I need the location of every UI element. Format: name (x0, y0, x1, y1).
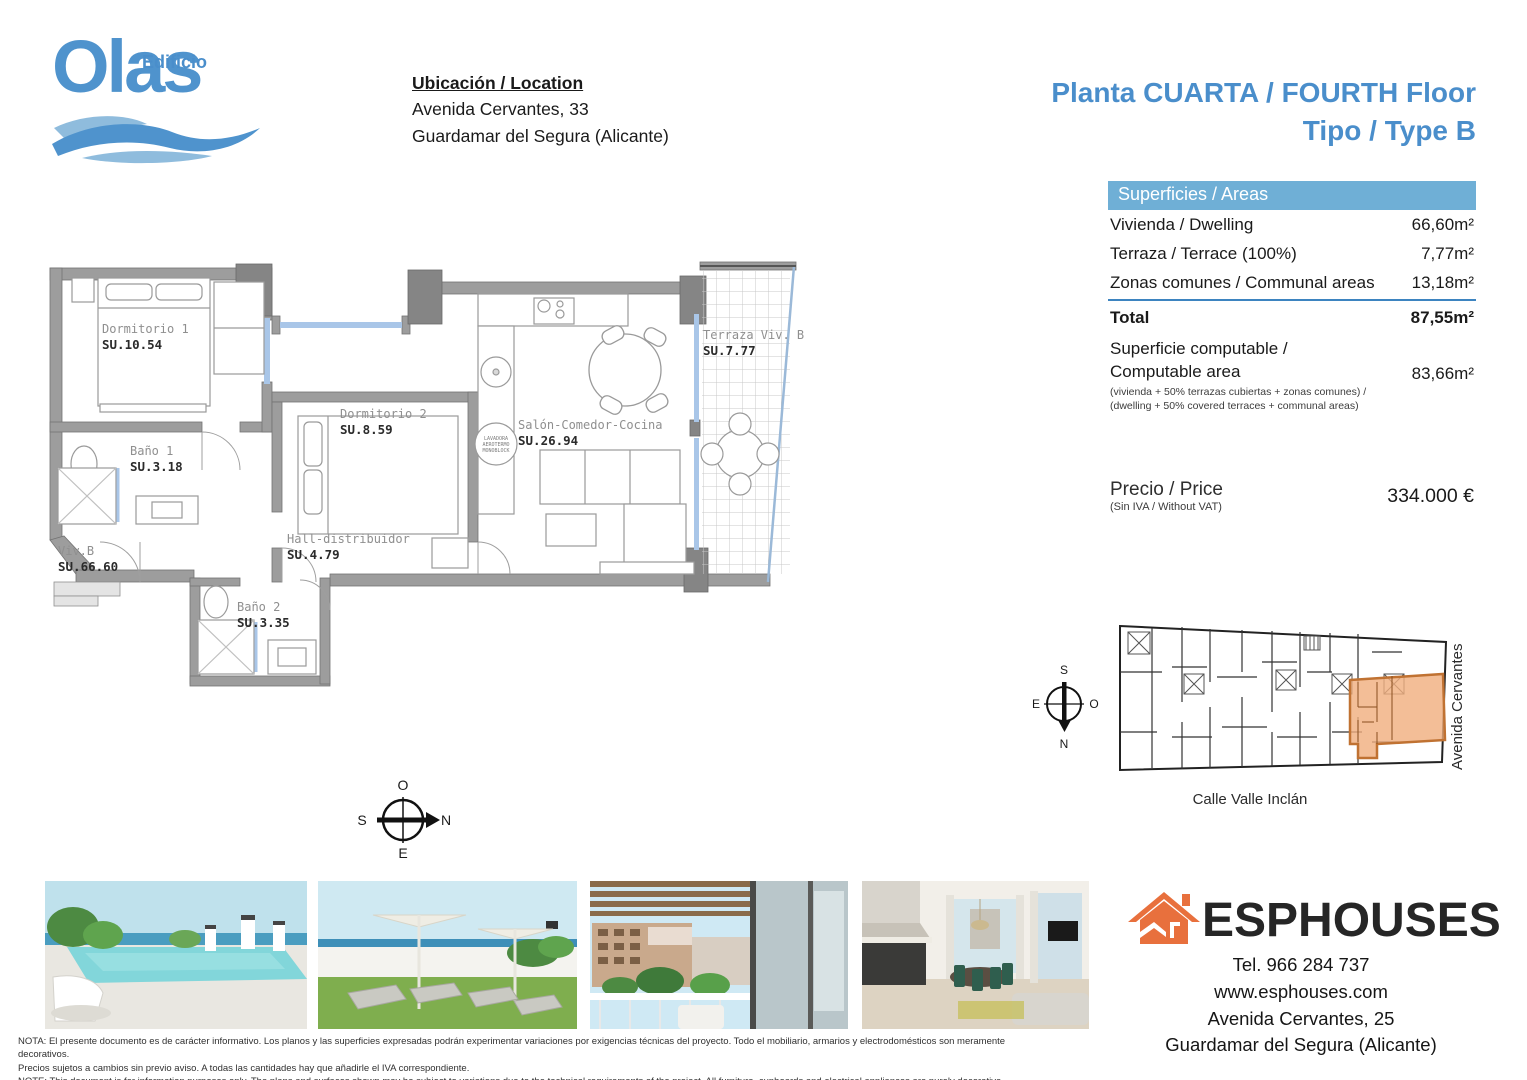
site-compass-left: E (1032, 697, 1040, 711)
disclaimer-es-2: Precios sujetos a cambios sin previo avi… (18, 1062, 1018, 1075)
computable-value: 83,66m² (1412, 364, 1474, 384)
agency-website: www.esphouses.com (1100, 979, 1502, 1006)
washer-label-3: MONOBLOCK (482, 448, 509, 454)
room-label-terraza: Terraza Viv. B SU.7.77 (703, 328, 804, 359)
areas-header: Superficies / Areas (1108, 181, 1476, 210)
area-row-dwelling: Vivienda / Dwelling 66,60m² (1108, 210, 1476, 239)
esphouses-house-icon (1126, 888, 1202, 955)
room-label-bano1: Baño 1 SU.3.18 (130, 444, 183, 475)
street-label-avenida-cervantes: Avenida Cervantes (1449, 622, 1466, 792)
plan-compass-icon: O N E S (357, 777, 451, 861)
agency-contact-block: Tel. 966 284 737 www.esphouses.com Aveni… (1100, 952, 1502, 1059)
logo-edificio-text: Edificio (142, 52, 207, 73)
dining-table (589, 324, 670, 417)
area-value: 66,60m² (1412, 215, 1474, 235)
location-line1: Avenida Cervantes, 33 (412, 96, 669, 122)
computable-area-row: Superficie computable / Computable area … (1108, 332, 1476, 384)
floor-plan: LAVADORA AEROTERMO MONOBLOCK O N E S Dor… (40, 252, 800, 872)
page-title-line1: Planta CUARTA / FOURTH Floor (900, 74, 1476, 112)
computable-label-line2: Computable area (1110, 361, 1288, 384)
area-row-total: Total 87,55m² (1108, 299, 1476, 332)
price-label: Precio / Price (1110, 479, 1223, 501)
site-compass-bottom: N (1060, 737, 1069, 751)
computable-label-line1: Superficie computable / (1110, 338, 1288, 361)
location-line2: Guardamar del Segura (Alicante) (412, 123, 669, 149)
price-note: (Sin IVA / Without VAT) (1110, 501, 1223, 513)
photo-balcony-view (590, 881, 848, 1029)
site-compass-icon: S O N E (1032, 663, 1099, 751)
plan-compass-left: S (357, 812, 366, 828)
room-label-salon: Salón-Comedor-Cocina SU.26.94 (518, 418, 663, 449)
areas-panel: Superficies / Areas Vivienda / Dwelling … (1108, 181, 1476, 513)
area-label: Terraza / Terrace (100%) (1110, 244, 1297, 264)
plan-compass-top: O (398, 777, 409, 793)
room-label-vivb: Viv.B SU.66.60 (58, 544, 118, 575)
logo-wave-icon (52, 110, 262, 171)
photo-sun-terrace (318, 881, 577, 1029)
area-row-communal: Zonas comunes / Communal areas 13,18m² (1108, 268, 1476, 297)
area-label: Zonas comunes / Communal areas (1110, 273, 1375, 293)
room-label-bano2: Baño 2 SU.3.35 (237, 600, 290, 631)
esphouses-wordmark: ESPHOUSES (1202, 893, 1501, 948)
computable-note-line1: (vivienda + 50% terrazas cubiertas + zon… (1110, 386, 1474, 400)
site-compass-top: S (1060, 663, 1068, 677)
area-value: 7,77m² (1421, 244, 1474, 264)
page-title-line2: Tipo / Type B (900, 112, 1476, 150)
sofa (540, 450, 694, 574)
area-value: 13,18m² (1412, 273, 1474, 293)
room-label-hall: Hall-distribuidor SU.4.79 (287, 532, 410, 563)
photo-living-room (862, 881, 1089, 1029)
total-value: 87,55m² (1411, 308, 1474, 328)
room-label-dormitorio1: Dormitorio 1 SU.10.54 (102, 322, 189, 353)
plan-compass-bottom: E (398, 845, 407, 861)
agency-address1: Avenida Cervantes, 25 (1100, 1006, 1502, 1033)
plan-compass-right: N (441, 812, 451, 828)
area-row-terrace: Terraza / Terrace (100%) 7,77m² (1108, 239, 1476, 268)
area-label: Vivienda / Dwelling (1110, 215, 1253, 235)
agency-address2: Guardamar del Segura (Alicante) (1100, 1032, 1502, 1059)
disclaimer-en-1: NOTE: This document is for information p… (18, 1075, 1018, 1080)
location-heading: Ubicación / Location (412, 70, 669, 96)
photo-rooftop-pool (45, 881, 307, 1029)
room-label-dormitorio2: Dormitorio 2 SU.8.59 (340, 407, 427, 438)
computable-note-line2: (dwelling + 50% covered terraces + commu… (1110, 400, 1474, 414)
street-label-calle-valle-inclan: Calle Valle Inclán (1105, 791, 1395, 808)
agency-phone: Tel. 966 284 737 (1100, 952, 1502, 979)
site-compass-right: O (1089, 697, 1098, 711)
page-title: Planta CUARTA / FOURTH Floor Tipo / Type… (900, 74, 1476, 150)
disclaimer-es-1: NOTA: El presente documento es de caráct… (18, 1035, 1018, 1062)
price-value: 334.000 € (1387, 479, 1474, 513)
total-label: Total (1110, 308, 1149, 328)
location-block: Ubicación / Location Avenida Cervantes, … (412, 70, 669, 149)
price-row: Precio / Price (Sin IVA / Without VAT) 3… (1108, 479, 1476, 513)
footer-disclaimer: NOTA: El presente documento es de caráct… (18, 1035, 1018, 1080)
